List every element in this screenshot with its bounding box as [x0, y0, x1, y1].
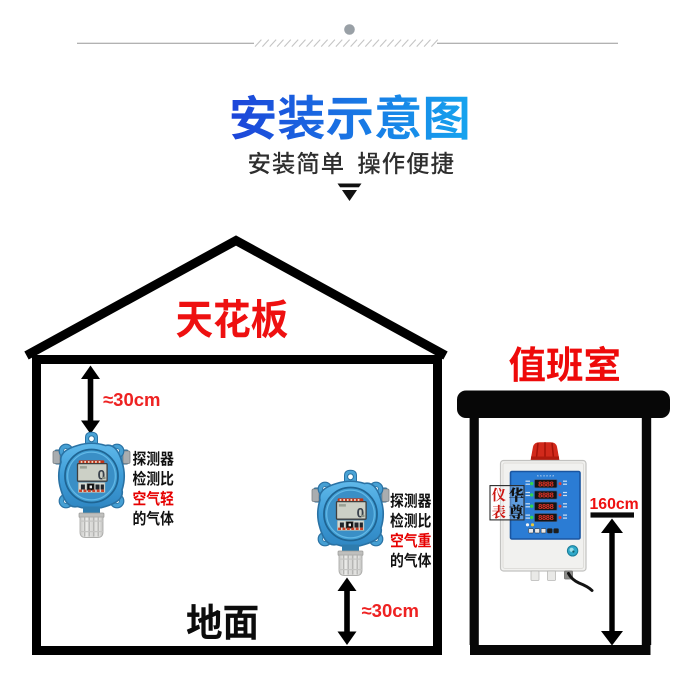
svg-text:8888: 8888	[538, 515, 555, 523]
svg-text:8888: 8888	[538, 504, 555, 512]
svg-text:* * * * * *: * * * * * *	[537, 474, 554, 479]
svg-text:8888: 8888	[538, 493, 555, 501]
svg-text:8888: 8888	[538, 481, 555, 489]
